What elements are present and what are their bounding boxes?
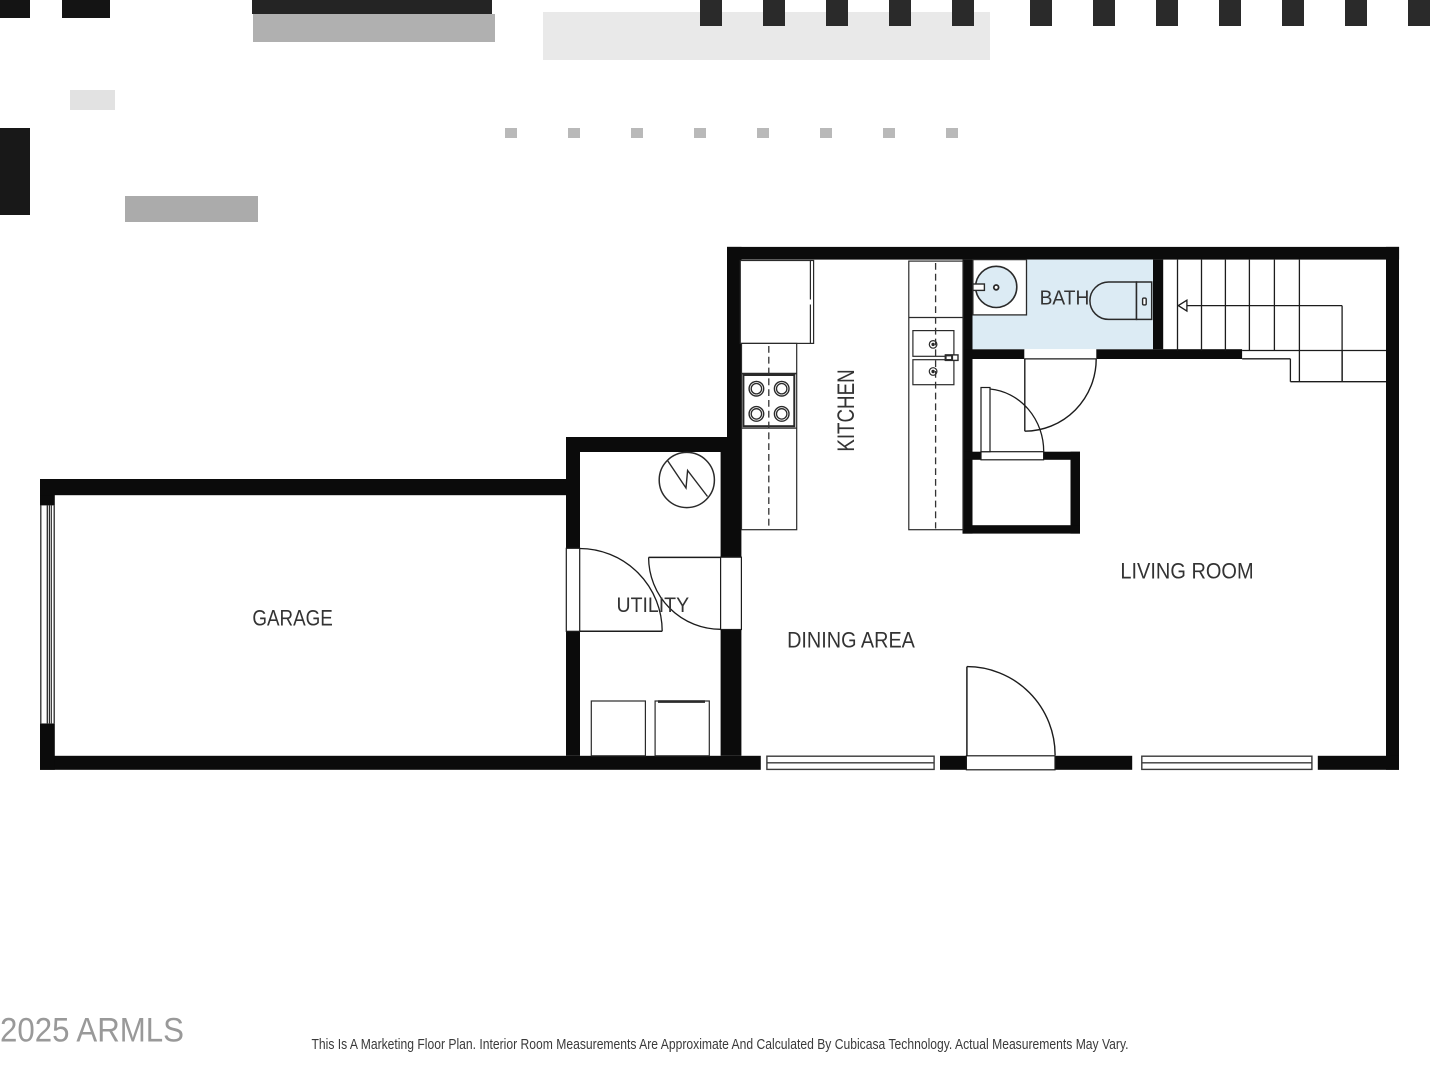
svg-text:UTILITY: UTILITY bbox=[617, 594, 690, 617]
svg-text:DINING AREA: DINING AREA bbox=[787, 628, 915, 653]
svg-text:KITCHEN: KITCHEN bbox=[833, 369, 860, 451]
svg-text:This Is A Marketing Floor Plan: This Is A Marketing Floor Plan. Interior… bbox=[312, 1036, 1129, 1053]
svg-text:BATH: BATH bbox=[1040, 287, 1090, 310]
svg-text:LIVING ROOM: LIVING ROOM bbox=[1120, 558, 1253, 583]
svg-text:GARAGE: GARAGE bbox=[252, 606, 333, 631]
svg-text:2025 ARMLS: 2025 ARMLS bbox=[0, 1012, 184, 1050]
